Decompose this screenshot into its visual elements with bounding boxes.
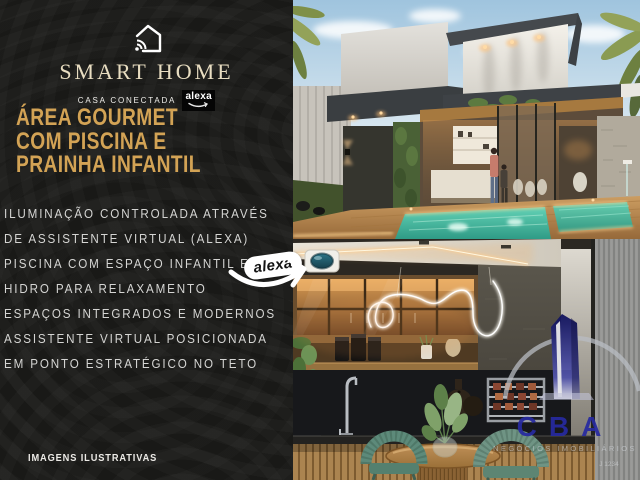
brand-lockup: SMART HOME CASA CONECTADA alexa [0,20,293,111]
feature-line: ASSISTENTE VIRTUAL POSICIONADA [4,327,276,352]
disclaimer-label: IMAGENS ILUSTRATIVAS [28,452,157,464]
alexa-logo-text: alexa [185,92,212,102]
feature-line: DE ASSISTENTE VIRTUAL (ALEXA) [4,227,276,252]
feature-line: ESPAÇOS INTEGRADOS E MODERNOS [4,302,276,327]
accent-wall [343,126,393,217]
photo-column: CBA NEGÓCIOS IMOBILIÁRIOS J 1234 [293,0,640,480]
info-panel: SMART HOME CASA CONECTADA alexa ÁREA GOU… [0,0,293,480]
cba-tagline: NEGÓCIOS IMOBILIÁRIOS [493,444,637,453]
alexa-arrow-icon [221,252,321,300]
headline: ÁREA GOURMET COM PISCINA E PRAINHA INFAN… [16,106,247,177]
headline-line: ÁREA GOURMET [16,106,201,130]
dining-chairs-inside [513,179,547,197]
feature-line: EM PONTO ESTRATÉGICO NO TETO [4,352,276,377]
photo-gourmet-area: CBA NEGÓCIOS IMOBILIÁRIOS J 1234 [293,239,640,480]
headline-line: COM PISCINA E [16,130,201,154]
headline-line: PRAINHA INFANTIL [16,153,201,177]
feature-line: ILUMINAÇÃO CONTROLADA ATRAVÉS [4,202,276,227]
cba-brand-text: CBA [517,411,614,442]
brand-title: SMART HOME [0,59,293,85]
photo-house-exterior [293,0,640,239]
smart-home-wifi-house-icon [129,20,165,56]
real-estate-flyer: SMART HOME CASA CONECTADA alexa ÁREA GOU… [0,0,640,480]
cba-registry: J 1234 [599,461,619,468]
